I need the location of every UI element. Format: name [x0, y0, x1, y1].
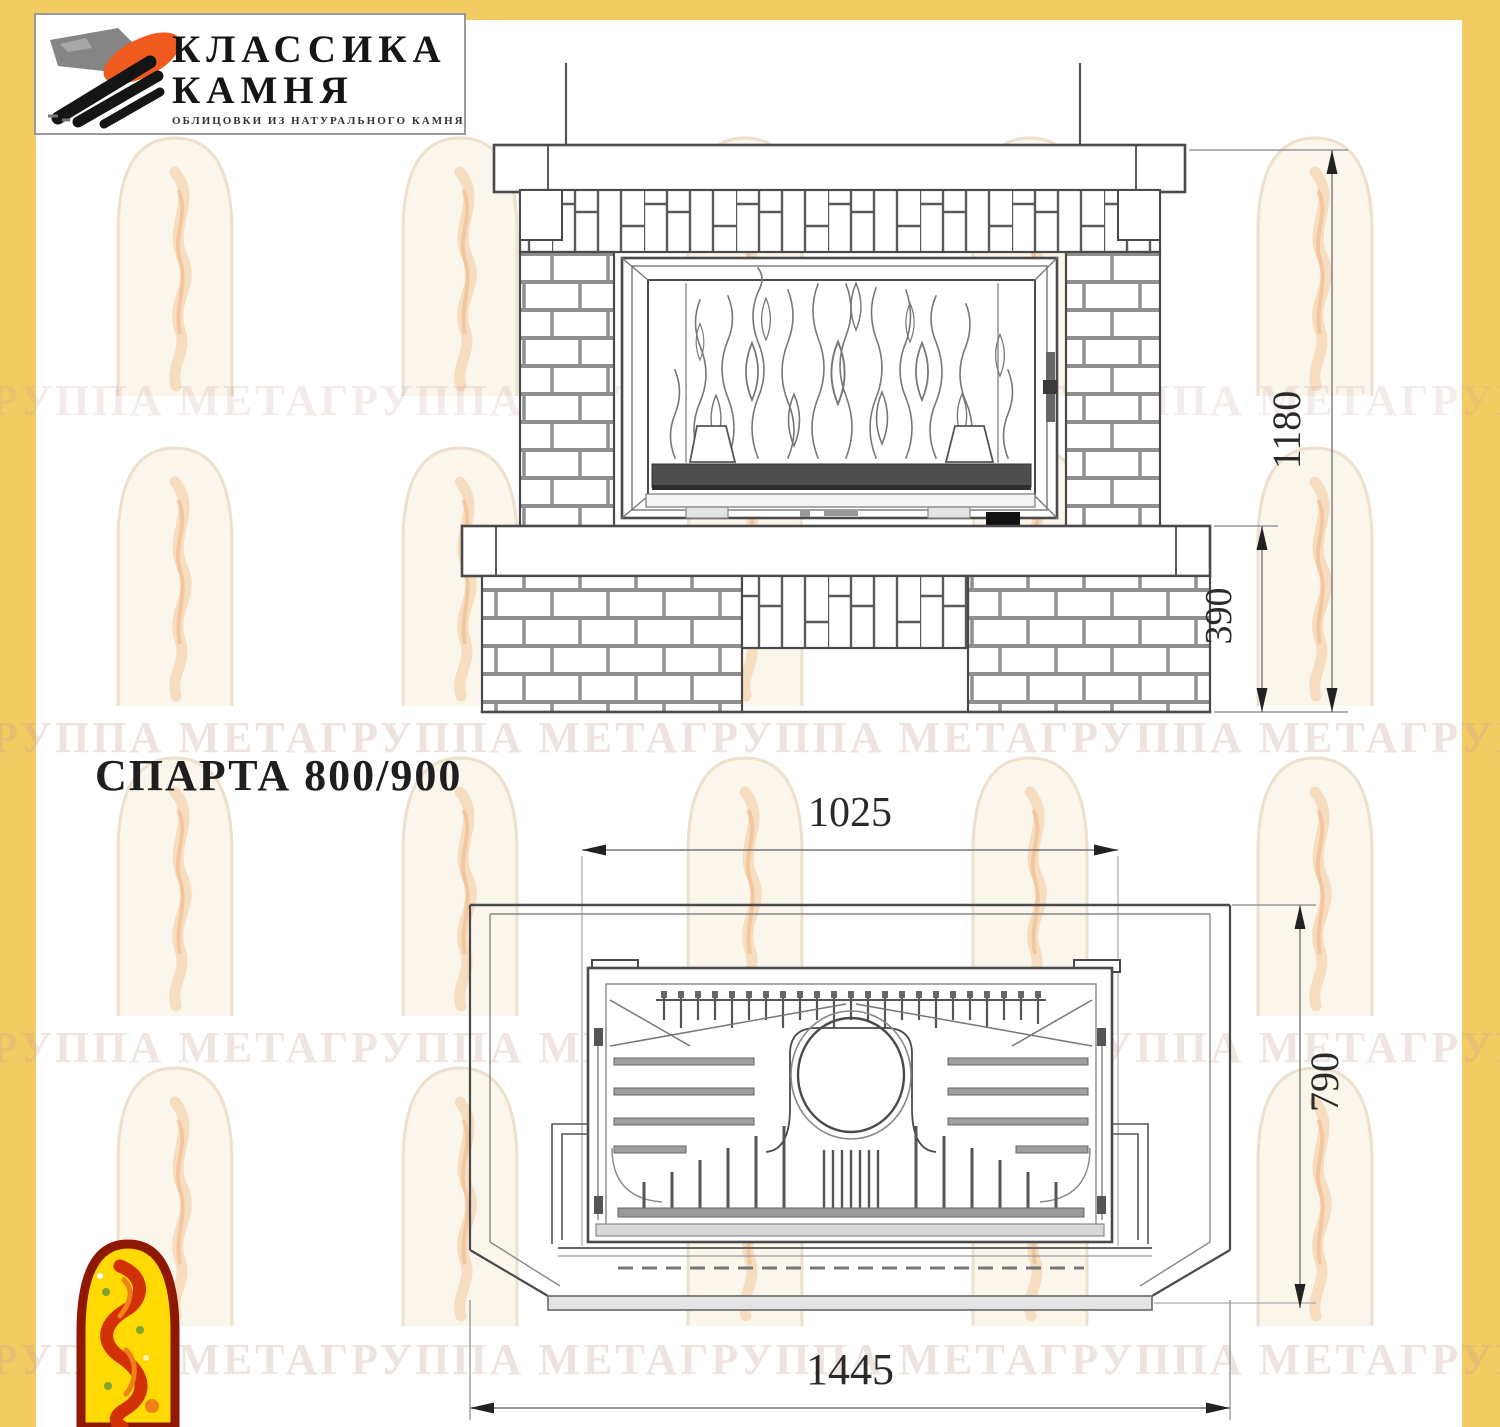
maker-plate-mark — [800, 510, 810, 517]
ash-drawer-handle — [986, 512, 1020, 525]
shelf-corbel-right — [1118, 190, 1160, 240]
model-title: СПАРТА 800/900 — [95, 751, 462, 800]
door-sill — [646, 494, 1035, 507]
flame-emblem — [81, 1244, 175, 1427]
grate-front-bar — [618, 1208, 1084, 1217]
door-latch-knob — [1043, 380, 1057, 394]
hearth-shelf — [462, 526, 1210, 576]
mantel-shelf — [494, 145, 1185, 192]
drawing-sheet: ГРУППА МЕТАГРУППА МЕТАГРУППА МЕТАГРУППА … — [0, 0, 1500, 1427]
watermark-text-row: ГРУППА МЕТАГРУППА МЕТАГРУППА МЕТАГРУППА … — [0, 1335, 1500, 1384]
brick-column-right — [1066, 252, 1160, 526]
grate-bar-shadow — [652, 485, 1031, 490]
grate-bar — [652, 464, 1031, 487]
base-pedestal-left — [482, 576, 742, 712]
andiron-left — [690, 426, 735, 462]
shelf-corbel-left — [520, 190, 562, 240]
logo-line2: КАМНЯ — [172, 69, 354, 112]
door-foot-left — [686, 507, 728, 518]
dim-label-790: 790 — [1302, 1052, 1347, 1112]
base-soldier-course — [742, 576, 968, 648]
door-foot-right — [928, 507, 970, 518]
drawing-canvas: ГРУППА МЕТАГРУППА МЕТАГРУППА МЕТАГРУППА … — [0, 0, 1500, 1427]
maker-plate — [824, 511, 858, 516]
dim-label-1025: 1025 — [808, 790, 892, 836]
dim-label-390: 390 — [1198, 588, 1240, 645]
insert-front-frame — [596, 1224, 1104, 1236]
soldier-course-top — [520, 190, 1160, 252]
brick-column-left — [520, 252, 614, 526]
dim-label-1180: 1180 — [1264, 391, 1309, 470]
company-logo: КЛАССИКА КАМНЯ ОБЛИЦОВКИ ИЗ НАТУРАЛЬНОГО… — [35, 14, 465, 134]
base-pedestal-right — [968, 576, 1210, 712]
logo-subtitle: ОБЛИЦОВКИ ИЗ НАТУРАЛЬНОГО КАМНЯ — [172, 115, 465, 127]
front-elevation-view — [462, 64, 1210, 712]
firebox-door — [622, 258, 1057, 518]
andiron-right — [946, 426, 993, 462]
plan-firebox-insert — [552, 960, 1152, 1268]
logo-line1: КЛАССИКА — [172, 28, 447, 71]
dim-label-1445: 1445 — [806, 1345, 894, 1394]
front-apron-edge — [548, 1296, 1152, 1310]
